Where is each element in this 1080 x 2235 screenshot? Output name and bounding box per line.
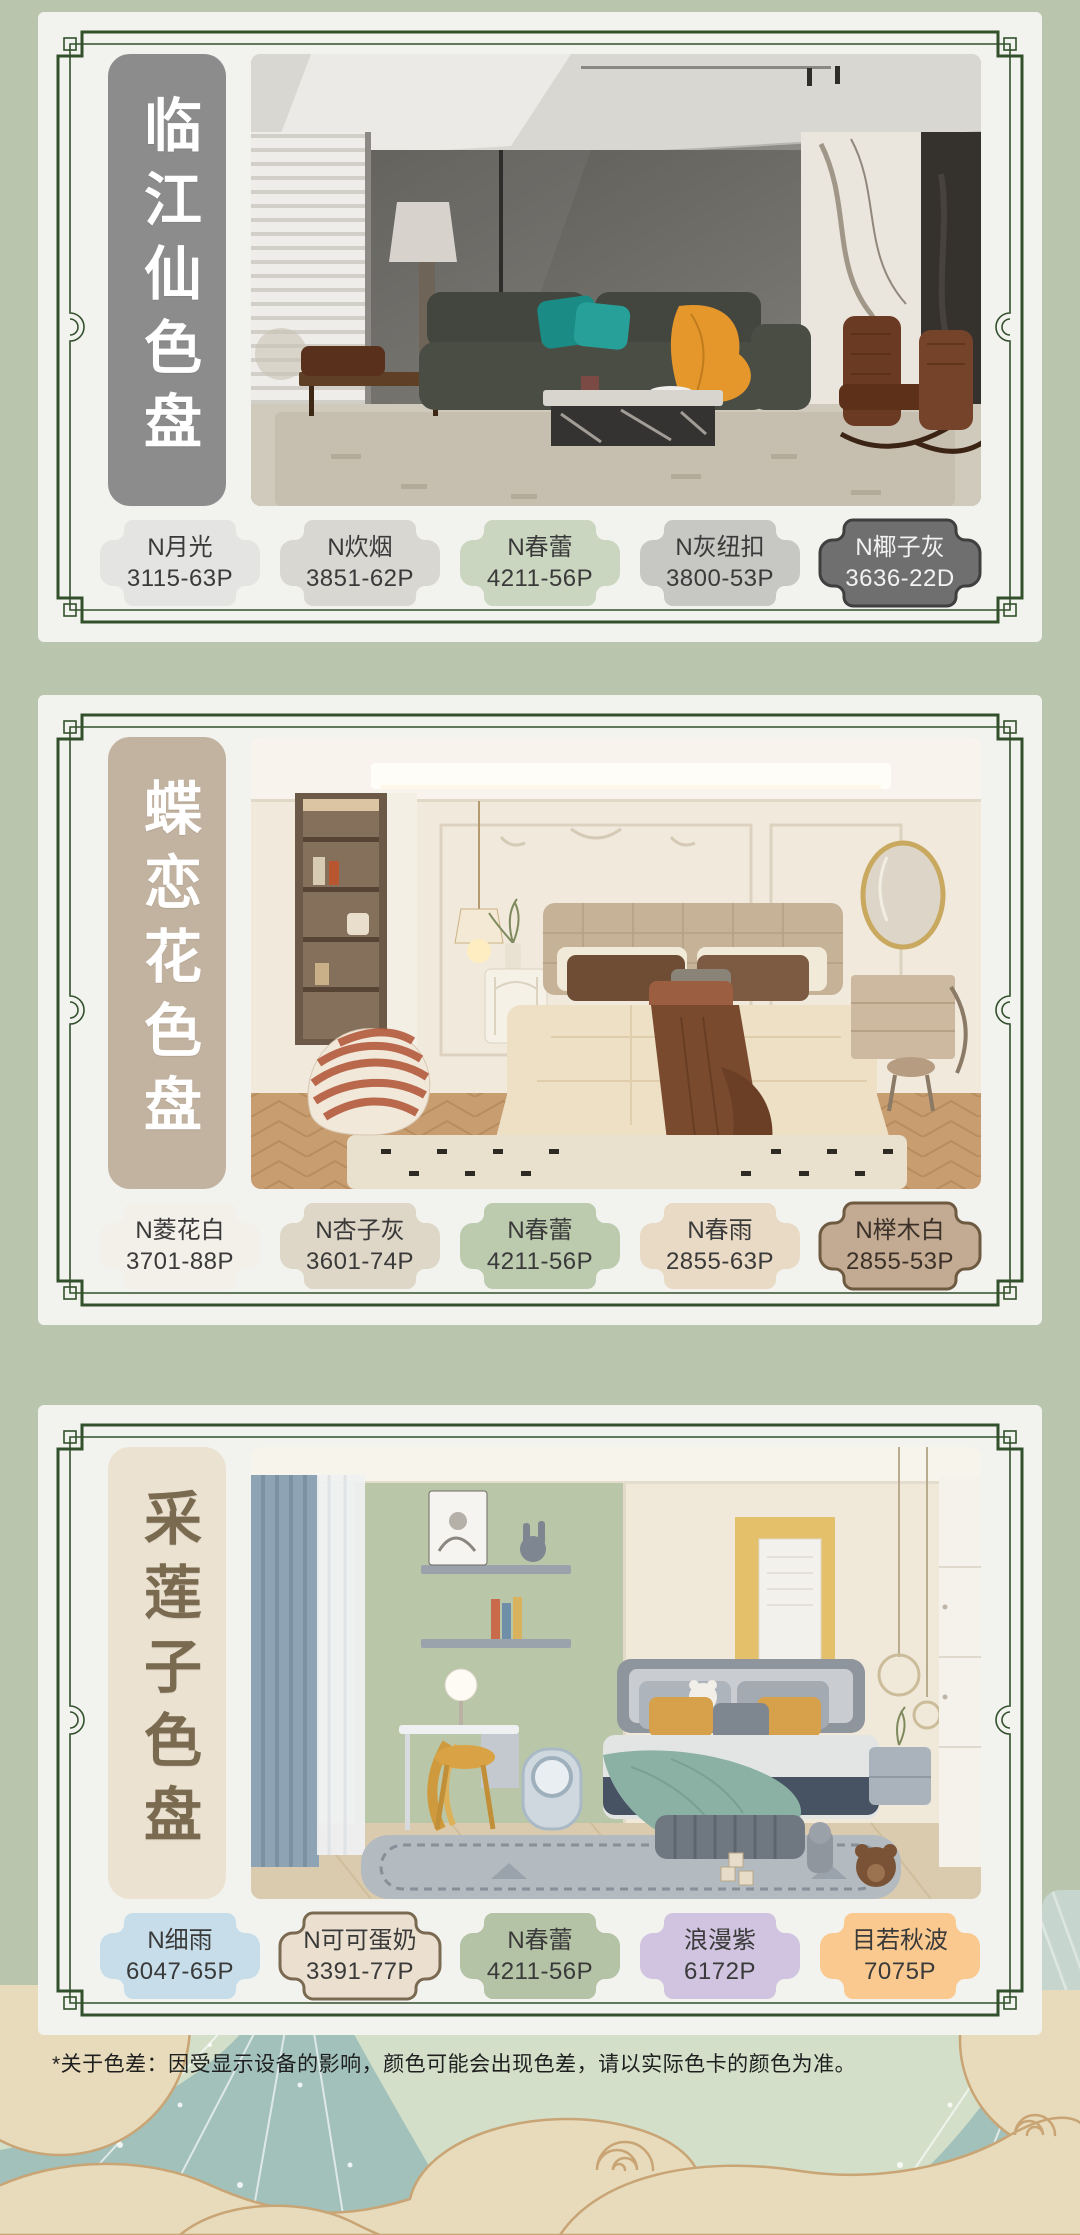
- swatch-code: 3851-62P: [306, 565, 414, 593]
- color-swatch: N菱花白 3701-88P: [97, 1200, 263, 1292]
- color-swatch: N炊烟 3851-62P: [277, 517, 443, 609]
- background-pattern-sliver: [1042, 1890, 1080, 1990]
- swatch-name: N春蕾: [507, 534, 572, 562]
- swatch-name: N灰纽扣: [675, 534, 764, 562]
- swatch-code: 4211-56P: [487, 1248, 593, 1276]
- swatch-name: N菱花白: [135, 1217, 224, 1245]
- color-swatch-highlighted: N可可蛋奶 3391-77P: [277, 1910, 443, 2002]
- palette-title: 临江仙色盘: [138, 95, 196, 465]
- swatch-code: 4211-56P: [487, 1958, 593, 1986]
- room-photo-living-room: [251, 54, 981, 506]
- palette-card-cailianzi: 采莲子色盘: [38, 1405, 1042, 2035]
- color-swatch: N月光 3115-63P: [97, 517, 263, 609]
- swatch-name: N春蕾: [507, 1927, 572, 1955]
- color-swatch: 浪漫紫 6172P: [637, 1910, 803, 2002]
- room-photo-bedroom: [251, 737, 981, 1189]
- swatch-name: N春雨: [687, 1217, 752, 1245]
- swatch-name: N月光: [147, 534, 212, 562]
- palette-card-linjiangxian: 临江仙色盘: [38, 12, 1042, 642]
- swatch-name: 浪漫紫: [684, 1927, 756, 1955]
- palette-title-box: 采莲子色盘: [108, 1447, 226, 1899]
- swatch-name: N春蕾: [507, 1217, 572, 1245]
- swatch-code: 3391-77P: [306, 1958, 414, 1986]
- swatch-row: N细雨 6047-65P N可可蛋奶 3391-77P N春蕾 4211-56P: [97, 1910, 983, 2002]
- room-photo-kids-room: [251, 1447, 981, 1899]
- swatch-name: N炊烟: [327, 534, 392, 562]
- swatch-name: 目若秋波: [852, 1927, 948, 1955]
- color-swatch: 目若秋波 7075P: [817, 1910, 983, 2002]
- palette-card-dielianhua: 蝶恋花色盘: [38, 695, 1042, 1325]
- swatch-code: 2855-63P: [666, 1248, 774, 1276]
- swatch-code: 3636-22D: [845, 565, 954, 593]
- color-palette-poster: 临江仙色盘: [0, 0, 1080, 2235]
- color-swatch: N细雨 6047-65P: [97, 1910, 263, 2002]
- swatch-name: N榉木白: [855, 1217, 944, 1245]
- palette-title: 蝶恋花色盘: [138, 778, 196, 1148]
- swatch-name: N可可蛋奶: [303, 1927, 416, 1955]
- palette-title-box: 临江仙色盘: [108, 54, 226, 506]
- color-swatch: N春雨 2855-63P: [637, 1200, 803, 1292]
- swatch-code: 6172P: [684, 1958, 756, 1986]
- color-swatch: N灰纽扣 3800-53P: [637, 517, 803, 609]
- color-disclaimer: *关于色差：因受显示设备的影响，颜色可能会出现色差，请以实际色卡的颜色为准。: [52, 2048, 856, 2078]
- color-swatch-highlighted: N榉木白 2855-53P: [817, 1200, 983, 1292]
- swatch-name: N细雨: [147, 1927, 212, 1955]
- swatch-name: N杏子灰: [315, 1217, 404, 1245]
- color-swatch: N春蕾 4211-56P: [457, 517, 623, 609]
- color-swatch: N春蕾 4211-56P: [457, 1200, 623, 1292]
- swatch-code: 2855-53P: [846, 1248, 954, 1276]
- color-swatch: N杏子灰 3601-74P: [277, 1200, 443, 1292]
- palette-title: 采莲子色盘: [138, 1488, 196, 1858]
- swatch-code: 3701-88P: [126, 1248, 234, 1276]
- swatch-code: 6047-65P: [126, 1958, 234, 1986]
- swatch-row: N菱花白 3701-88P N杏子灰 3601-74P N春蕾 4211-56P: [97, 1200, 983, 1292]
- swatch-name: N椰子灰: [855, 534, 944, 562]
- swatch-code: 3800-53P: [666, 565, 774, 593]
- palette-title-box: 蝶恋花色盘: [108, 737, 226, 1189]
- color-swatch-highlighted: N椰子灰 3636-22D: [817, 517, 983, 609]
- color-swatch: N春蕾 4211-56P: [457, 1910, 623, 2002]
- swatch-code: 3115-63P: [127, 565, 233, 593]
- swatch-code: 3601-74P: [306, 1248, 414, 1276]
- swatch-row: N月光 3115-63P N炊烟 3851-62P N春蕾 4211-56P: [97, 517, 983, 609]
- swatch-code: 4211-56P: [487, 565, 593, 593]
- swatch-code: 7075P: [864, 1958, 936, 1986]
